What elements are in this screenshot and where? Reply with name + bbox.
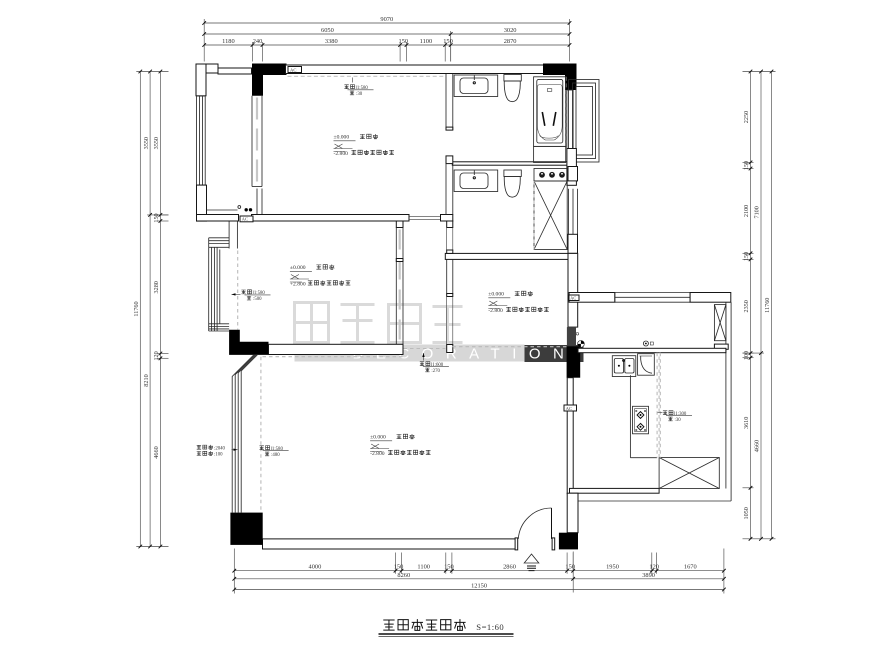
svg-text:AC: AC bbox=[290, 67, 296, 72]
svg-text:120: 120 bbox=[649, 564, 659, 571]
svg-text:150: 150 bbox=[399, 38, 409, 45]
svg-text:11760: 11760 bbox=[764, 298, 771, 313]
svg-text:3280: 3280 bbox=[153, 281, 160, 293]
svg-text:2250: 2250 bbox=[743, 111, 750, 123]
svg-text:1180: 1180 bbox=[222, 38, 235, 45]
svg-text:4660: 4660 bbox=[153, 446, 160, 458]
svg-text:AC: AC bbox=[566, 406, 572, 411]
svg-text:150: 150 bbox=[565, 564, 575, 571]
svg-text::270: :270 bbox=[431, 369, 440, 374]
svg-text:±0.000: ±0.000 bbox=[290, 265, 306, 271]
svg-text:8260: 8260 bbox=[397, 572, 410, 579]
svg-text:±0.000: ±0.000 bbox=[370, 435, 386, 441]
svg-text:150: 150 bbox=[743, 161, 750, 170]
svg-text:9070: 9070 bbox=[380, 16, 393, 23]
svg-text:100: 100 bbox=[743, 351, 750, 360]
svg-text::30: :30 bbox=[675, 418, 682, 423]
svg-text:2350: 2350 bbox=[743, 300, 750, 312]
svg-text:1050: 1050 bbox=[743, 507, 750, 519]
svg-text:2100: 2100 bbox=[743, 205, 750, 217]
svg-text::480: :480 bbox=[271, 453, 280, 458]
svg-text:150: 150 bbox=[444, 564, 454, 571]
svg-text:1670: 1670 bbox=[684, 564, 697, 571]
svg-text:AC: AC bbox=[570, 296, 576, 301]
svg-text:8210: 8210 bbox=[143, 374, 150, 386]
svg-text:1950: 1950 bbox=[606, 564, 619, 571]
svg-text:l1:600: l1:600 bbox=[431, 363, 444, 368]
svg-text:3890: 3890 bbox=[642, 572, 655, 579]
svg-text:150: 150 bbox=[394, 564, 404, 571]
svg-text:±0.000: ±0.000 bbox=[334, 135, 350, 141]
svg-text:l1:300: l1:300 bbox=[674, 412, 687, 417]
svg-text::100: :100 bbox=[214, 453, 223, 458]
svg-text:120: 120 bbox=[153, 351, 160, 360]
svg-text:150: 150 bbox=[153, 213, 160, 222]
svg-text:3020: 3020 bbox=[504, 27, 517, 34]
svg-text:3380: 3380 bbox=[325, 38, 338, 45]
svg-text::2040: :2040 bbox=[214, 446, 226, 451]
svg-text:l1:580: l1:580 bbox=[253, 291, 266, 296]
svg-text:±0.000: ±0.000 bbox=[488, 292, 504, 298]
svg-text:-2.800: -2.800 bbox=[488, 308, 503, 314]
svg-text:AC: AC bbox=[242, 217, 248, 222]
svg-text:2860: 2860 bbox=[503, 564, 516, 571]
svg-text:240: 240 bbox=[253, 38, 263, 45]
svg-text:3550: 3550 bbox=[143, 137, 150, 149]
svg-text:-2.800: -2.800 bbox=[334, 151, 349, 157]
svg-text:6050: 6050 bbox=[321, 27, 334, 34]
svg-text:2870: 2870 bbox=[504, 38, 517, 45]
svg-text:4660: 4660 bbox=[754, 440, 761, 452]
svg-text:S=1:60: S=1:60 bbox=[476, 622, 504, 632]
svg-text:11760: 11760 bbox=[133, 301, 140, 316]
svg-text::30: :30 bbox=[356, 92, 363, 97]
svg-text:3610: 3610 bbox=[743, 417, 750, 429]
svg-text:+2.800: +2.800 bbox=[290, 282, 306, 288]
svg-text:7100: 7100 bbox=[754, 206, 761, 218]
svg-text:150: 150 bbox=[443, 38, 453, 45]
svg-text:150: 150 bbox=[743, 252, 750, 261]
svg-text:1100: 1100 bbox=[420, 38, 433, 45]
svg-text:1100: 1100 bbox=[417, 564, 430, 571]
svg-text:3550: 3550 bbox=[153, 137, 160, 149]
svg-text:4000: 4000 bbox=[309, 564, 322, 571]
svg-text:12150: 12150 bbox=[471, 583, 487, 590]
svg-text::500: :500 bbox=[253, 297, 262, 302]
svg-text:-2.800: -2.800 bbox=[370, 451, 385, 457]
svg-text:l1:580: l1:580 bbox=[271, 447, 284, 452]
